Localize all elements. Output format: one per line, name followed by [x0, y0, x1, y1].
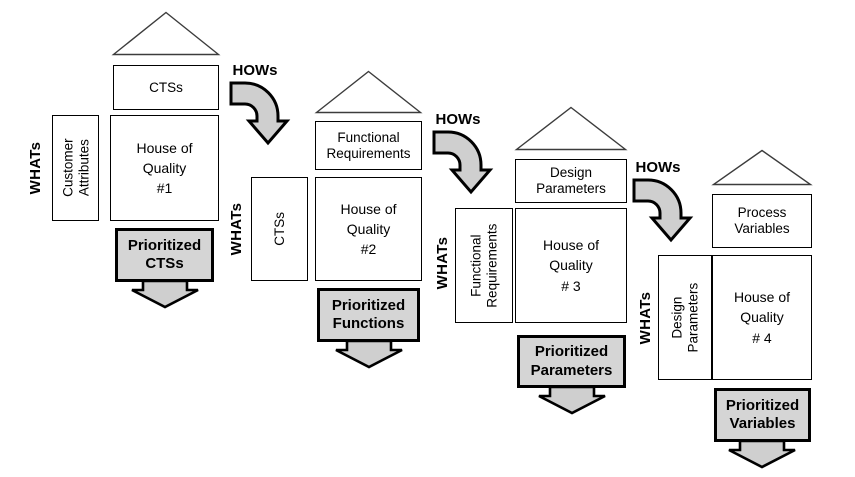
house2-down-arrow-icon	[335, 340, 403, 368]
house2-main-label: House of Quality #2	[340, 199, 396, 260]
house2-top-label: Functional Requirements	[326, 130, 410, 161]
house1-top-label: CTSs	[149, 80, 183, 96]
house3-whats-label: WHATs	[434, 228, 452, 298]
house3-top-label: Design Parameters	[536, 165, 606, 196]
house1-main-label: House of Quality #1	[136, 138, 192, 199]
house1-left-box: Customer Attributes	[52, 115, 99, 221]
hows-arrow-icon-3	[631, 177, 693, 243]
house4-whats-label: WHATs	[637, 283, 655, 353]
house4-left-label: Design Parameters	[669, 259, 700, 377]
hows-label-3: HOWs	[628, 159, 688, 176]
house1-main-box: House of Quality #1	[110, 115, 219, 221]
house3-prioritized-box: Prioritized Parameters	[517, 335, 626, 388]
house4-top-label: Process Variables	[734, 205, 789, 236]
house4-top-box: Process Variables	[712, 194, 812, 248]
hows-arrow-icon-1	[228, 80, 290, 146]
house3-main-box: House of Quality # 3	[515, 208, 627, 323]
house2-main-box: House of Quality #2	[315, 177, 422, 281]
house3-main-label: House of Quality # 3	[543, 235, 599, 296]
house4-prioritized-label: Prioritized Variables	[726, 397, 799, 434]
house2-left-label: CTSs	[272, 180, 288, 278]
hows-arrow-icon-2	[431, 129, 493, 195]
house1-prioritized-box: Prioritized CTSs	[115, 228, 214, 282]
house1-prioritized-label: Prioritized CTSs	[128, 237, 201, 274]
house4-main-box: House of Quality # 4	[712, 255, 812, 380]
house2-left-box: CTSs	[251, 177, 308, 281]
house3-roof-icon	[515, 106, 627, 151]
hows-label-1: HOWs	[225, 62, 285, 79]
house3-down-arrow-icon	[538, 386, 606, 414]
house2-prioritized-label: Prioritized Functions	[332, 297, 405, 334]
house2-roof-icon	[315, 70, 422, 114]
house1-left-label: Customer Attributes	[60, 118, 91, 218]
house4-main-label: House of Quality # 4	[734, 287, 790, 348]
house2-top-box: Functional Requirements	[315, 121, 422, 170]
house2-prioritized-box: Prioritized Functions	[317, 288, 420, 342]
house1-whats-label: WHATs	[27, 133, 45, 203]
house4-down-arrow-icon	[728, 440, 796, 468]
house4-prioritized-box: Prioritized Variables	[714, 388, 811, 442]
house2-whats-label: WHATs	[228, 194, 246, 264]
house1-down-arrow-icon	[131, 280, 199, 308]
house3-left-box: Functional Requirements	[455, 208, 513, 323]
house1-roof-icon	[112, 11, 220, 56]
house3-prioritized-label: Prioritized Parameters	[531, 343, 613, 380]
qfd-cascade-diagram: CTSs WHATs Customer Attributes House of …	[0, 0, 855, 477]
house3-left-label: Functional Requirements	[468, 211, 499, 321]
house1-top-box: CTSs	[113, 65, 219, 110]
hows-label-2: HOWs	[428, 111, 488, 128]
house3-top-box: Design Parameters	[515, 159, 627, 203]
house4-roof-icon	[712, 149, 812, 186]
house4-left-box: Design Parameters	[658, 255, 712, 380]
